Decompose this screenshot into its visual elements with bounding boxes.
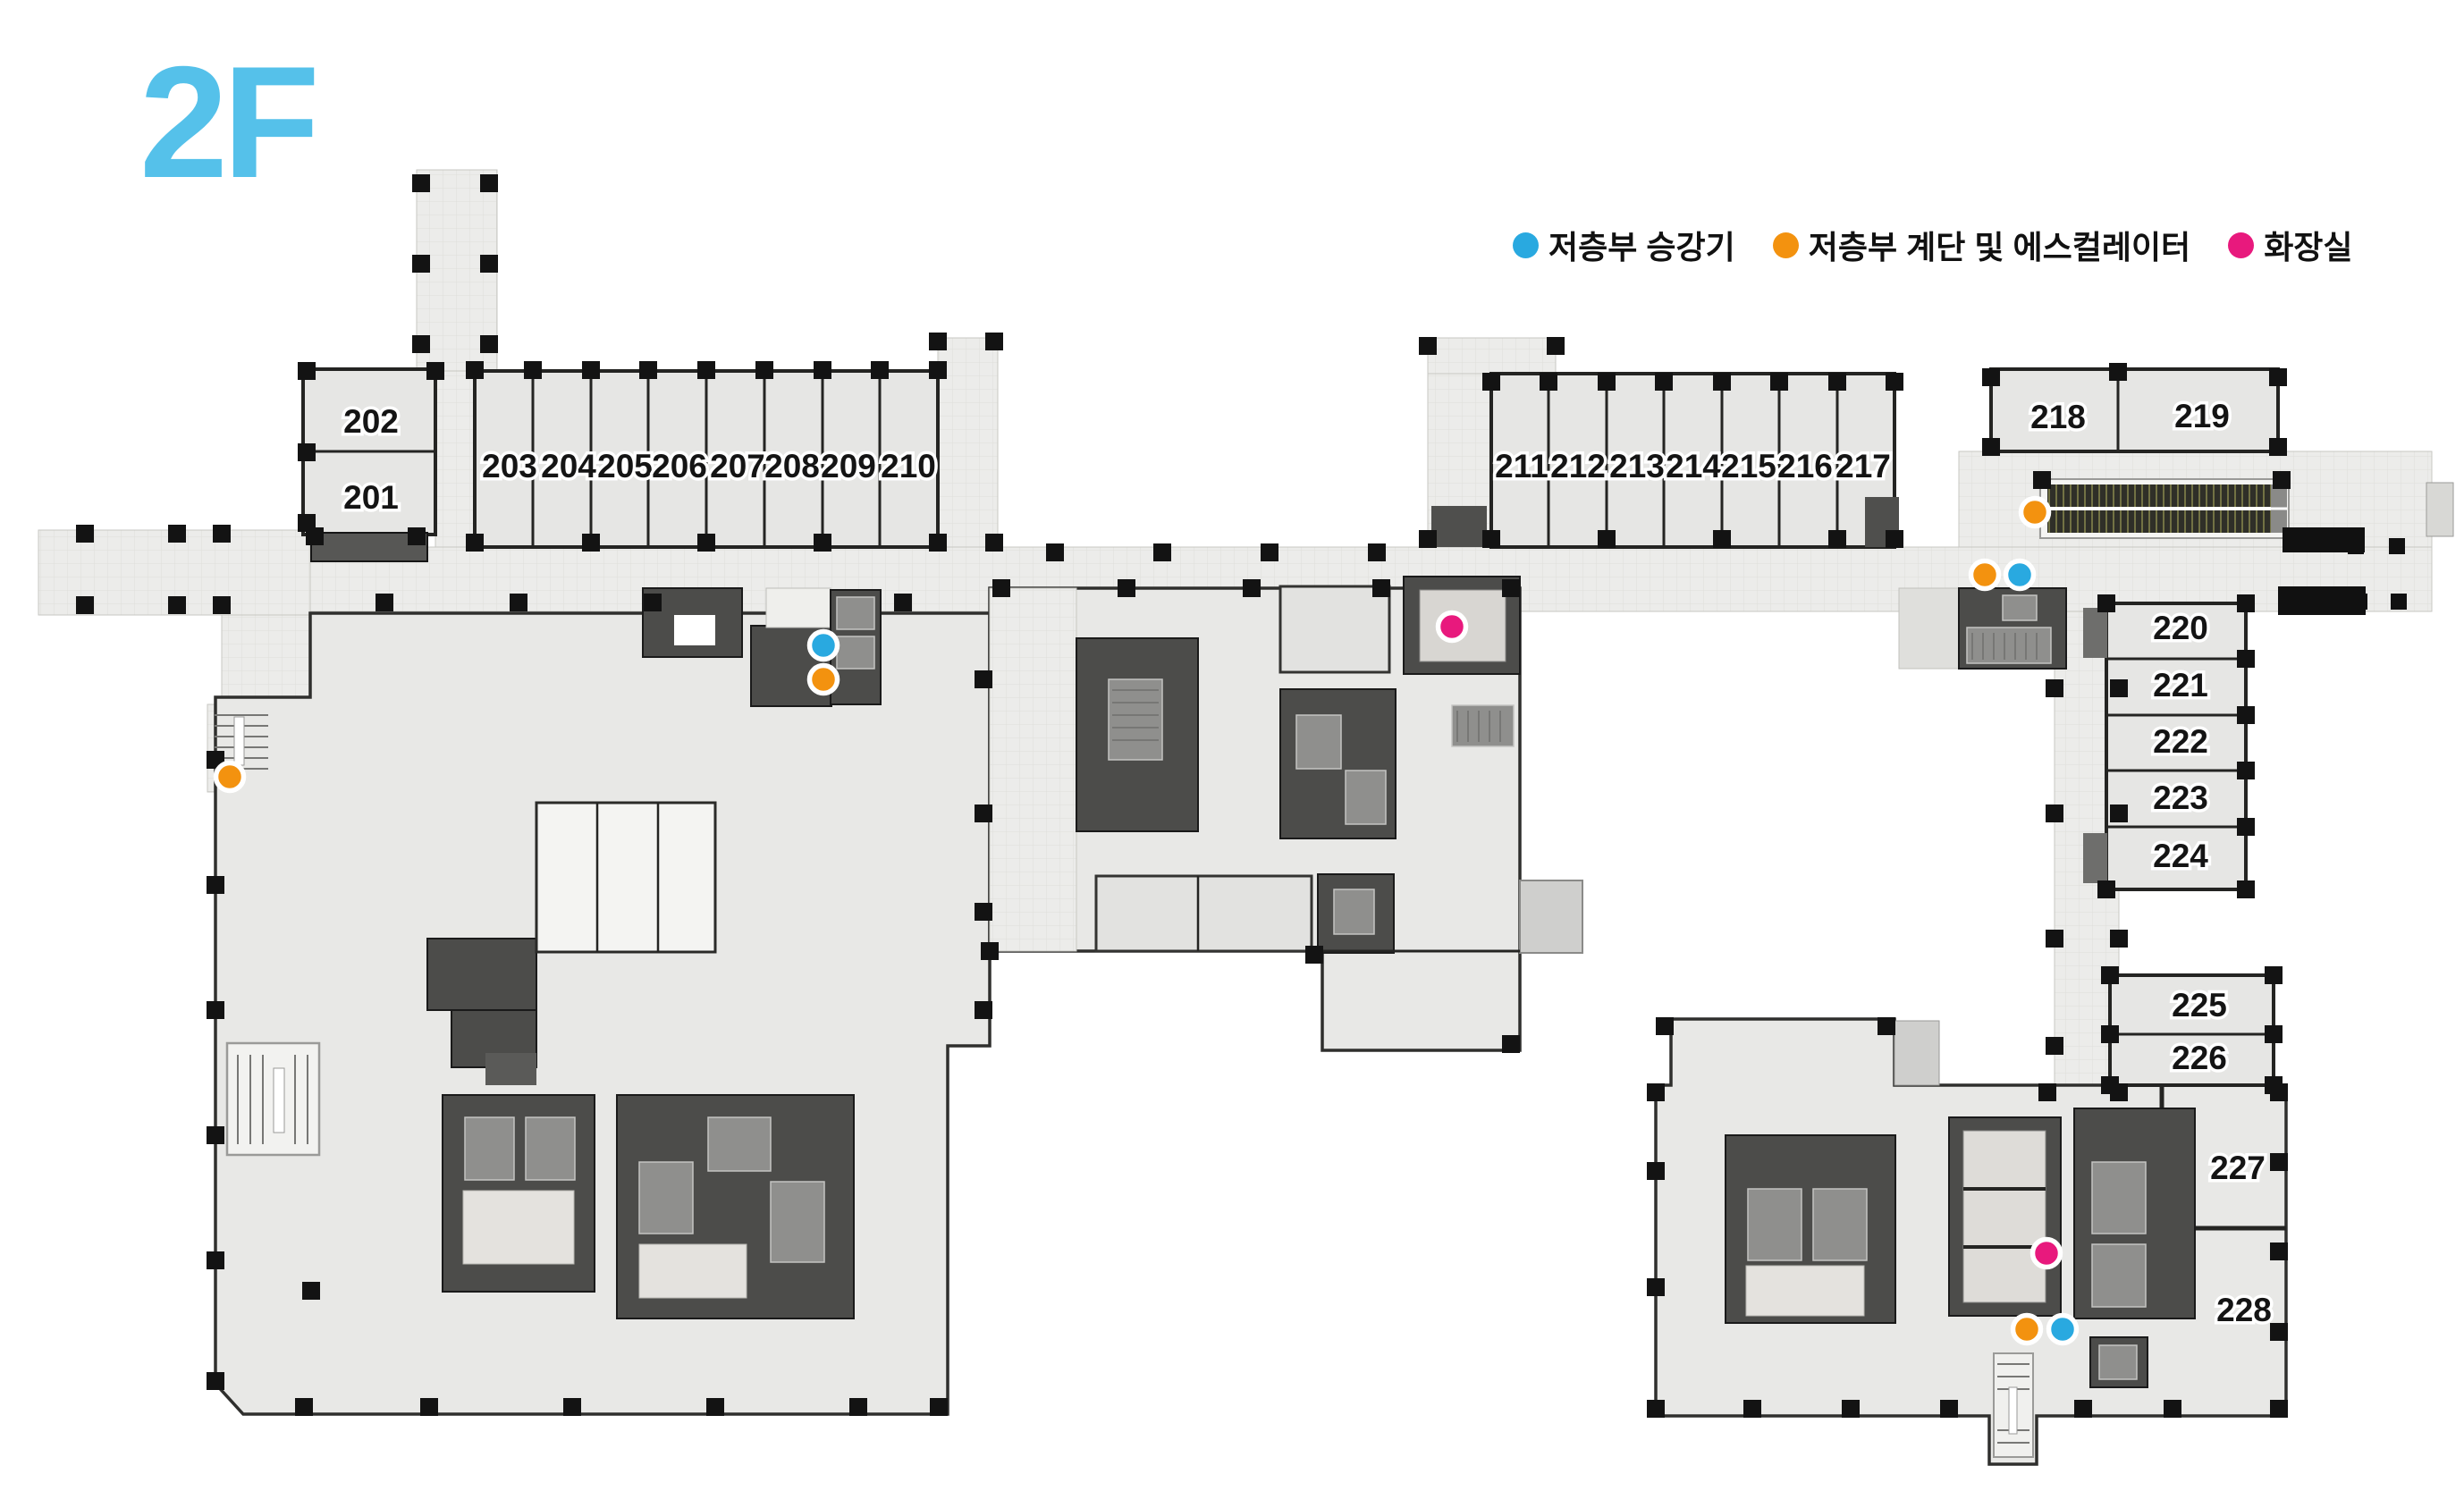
- rooms-left-top: [536, 803, 715, 952]
- room-label-208: 208: [764, 448, 820, 484]
- column: [207, 1126, 224, 1144]
- room-label-201: 201: [343, 479, 399, 516]
- column: [1878, 1017, 1895, 1035]
- column: [975, 903, 992, 921]
- room-label-207: 207: [710, 448, 765, 484]
- column: [207, 1251, 224, 1269]
- column: [1547, 337, 1565, 355]
- column: [1261, 543, 1278, 561]
- room-label-227: 227: [2210, 1150, 2266, 1186]
- column: [706, 1398, 724, 1416]
- column: [1372, 579, 1390, 597]
- column: [1828, 530, 1846, 548]
- floor-title: 2F: [139, 43, 315, 202]
- column: [168, 525, 186, 543]
- room-label-214: 214: [1666, 448, 1721, 484]
- column: [814, 534, 831, 552]
- column: [1368, 543, 1386, 561]
- room-label-206: 206: [652, 448, 707, 484]
- building-center-balcony: [1520, 880, 1582, 953]
- column: [985, 333, 1003, 350]
- column: [2237, 594, 2255, 612]
- column: [2273, 471, 2291, 489]
- floorplan-page: 2012022032042052062072082092102112122132…: [0, 0, 2464, 1491]
- corridor-tab-211: [1428, 338, 1556, 374]
- column: [466, 534, 484, 552]
- column: [2265, 1025, 2283, 1043]
- column: [929, 361, 947, 379]
- elevator-dot-icon: [1513, 232, 1539, 258]
- corridor-right-of-210: [938, 338, 998, 547]
- room-label-216: 216: [1777, 448, 1833, 484]
- column: [2101, 966, 2119, 984]
- column: [408, 527, 426, 545]
- room-label-212: 212: [1550, 448, 1606, 484]
- column: [639, 361, 657, 379]
- elevator-car-2: [837, 636, 874, 669]
- marker-restroom: [2033, 1240, 2061, 1268]
- corridor-gap-202-203: [435, 371, 475, 547]
- column: [563, 1398, 581, 1416]
- room-label-213: 213: [1609, 448, 1665, 484]
- column: [644, 594, 662, 611]
- column: [814, 361, 831, 379]
- column: [306, 527, 324, 545]
- column: [981, 942, 999, 960]
- column: [2270, 1242, 2288, 1260]
- column: [1243, 579, 1261, 597]
- column: [1655, 373, 1673, 391]
- center-rooms-top: [1280, 586, 1389, 672]
- column: [1482, 530, 1500, 548]
- center-rooms-bottom: [1096, 876, 1312, 951]
- column: [1647, 1162, 1665, 1180]
- atrium-stair-rail: [274, 1068, 284, 1133]
- column: [1540, 373, 1557, 391]
- lower-lobe-balcony: [1894, 1021, 1939, 1085]
- core-left-lobby: [766, 588, 831, 628]
- corridor-left-junction: [222, 615, 310, 704]
- column: [420, 1398, 438, 1416]
- column: [2074, 1400, 2092, 1418]
- room-label-204: 204: [541, 448, 596, 484]
- column: [1502, 579, 1520, 597]
- column: [213, 596, 231, 614]
- room-label-224: 224: [2153, 838, 2208, 874]
- column: [2270, 1400, 2288, 1418]
- column: [2110, 930, 2128, 948]
- lr-restroom-inner: [1963, 1131, 2046, 1302]
- marker-stairs-escalator: [216, 763, 244, 791]
- column: [1656, 1017, 1674, 1035]
- column: [2110, 679, 2128, 697]
- column: [1982, 438, 2000, 456]
- room-label-215: 215: [1721, 448, 1776, 484]
- column: [2237, 818, 2255, 836]
- column: [1842, 1400, 1860, 1418]
- legend-label: 저층부 계단 및 에스컬레이터: [1809, 222, 2190, 268]
- column: [1118, 579, 1135, 597]
- restroom-dot-icon: [2228, 232, 2254, 258]
- marker-elevator: [2006, 561, 2034, 589]
- column: [480, 174, 498, 192]
- column: [582, 361, 600, 379]
- column: [1713, 373, 1731, 391]
- column: [1940, 1400, 1958, 1418]
- column: [2046, 804, 2063, 822]
- room-label-218: 218: [2030, 399, 2086, 435]
- stub-left-of-211: [1431, 506, 1487, 547]
- column: [2097, 594, 2115, 612]
- room-label-223: 223: [2153, 779, 2208, 816]
- column: [582, 534, 600, 552]
- column: [2269, 368, 2287, 386]
- legend-item-elevator: 저층부 승강기: [1513, 222, 1735, 268]
- marker-stairs-escalator: [810, 666, 838, 694]
- column: [1046, 543, 1064, 561]
- column: [2269, 438, 2287, 456]
- column: [2046, 930, 2063, 948]
- column: [480, 255, 498, 273]
- column: [2101, 1025, 2119, 1043]
- room-label-202: 202: [343, 403, 399, 440]
- room-label-205: 205: [597, 448, 653, 484]
- column: [755, 361, 773, 379]
- column: [510, 594, 527, 611]
- column: [2164, 1400, 2181, 1418]
- column: [298, 443, 316, 461]
- column: [1419, 530, 1437, 548]
- column: [1305, 946, 1323, 964]
- column: [849, 1398, 867, 1416]
- escalator-band-up: [2047, 484, 2271, 507]
- column: [426, 362, 444, 380]
- building-left: [215, 613, 990, 1414]
- lr-stair: [1994, 1353, 2033, 1457]
- column: [2237, 762, 2255, 779]
- column: [2265, 966, 2283, 984]
- column: [1502, 1035, 1520, 1053]
- marker-elevator: [810, 632, 838, 660]
- core-left-void: [674, 615, 715, 645]
- column: [1647, 1400, 1665, 1418]
- column: [975, 804, 992, 822]
- column: [412, 174, 430, 192]
- elevator-car-1: [837, 597, 874, 629]
- room-label-221: 221: [2153, 667, 2208, 703]
- column: [985, 534, 1003, 552]
- column: [894, 594, 912, 611]
- court-near-core: [1899, 588, 1960, 669]
- legend: 저층부 승강기 저층부 계단 및 에스컬레이터 화장실: [1513, 222, 2353, 268]
- column: [412, 335, 430, 353]
- column: [1886, 373, 1903, 391]
- bath-block-3: [485, 1053, 536, 1085]
- column: [930, 1398, 948, 1416]
- escalator: [2040, 479, 2289, 538]
- column: [298, 362, 316, 380]
- room-label-217: 217: [1835, 448, 1891, 484]
- column: [2237, 706, 2255, 724]
- column: [992, 579, 1010, 597]
- column: [376, 594, 393, 611]
- marker-restroom: [1439, 613, 1466, 641]
- tab-left-220: [2083, 608, 2107, 658]
- column: [871, 361, 889, 379]
- marker-stairs-escalator: [2021, 499, 2049, 526]
- column: [1770, 373, 1788, 391]
- column: [2110, 1083, 2128, 1101]
- room-label-211: 211: [1495, 448, 1548, 484]
- column: [76, 596, 94, 614]
- room-label-228: 228: [2216, 1292, 2272, 1328]
- marker-stairs-escalator: [1971, 561, 1999, 589]
- column: [975, 670, 992, 688]
- column: [168, 596, 186, 614]
- room-label-203: 203: [482, 448, 537, 484]
- legend-item-stairs-escalator: 저층부 계단 및 에스컬레이터: [1773, 222, 2190, 268]
- stairs-escalator-dot-icon: [1773, 232, 1799, 258]
- room-label-222: 222: [2153, 723, 2208, 760]
- column: [697, 534, 715, 552]
- legend-item-restroom: 화장실: [2228, 222, 2352, 268]
- column: [2109, 363, 2127, 381]
- column: [929, 333, 947, 350]
- center-stair: [1452, 705, 1514, 746]
- column: [2046, 1037, 2063, 1055]
- column: [480, 335, 498, 353]
- column: [207, 1001, 224, 1019]
- column: [697, 361, 715, 379]
- column: [2033, 471, 2051, 489]
- column: [412, 255, 430, 273]
- column: [2237, 650, 2255, 668]
- column: [524, 361, 542, 379]
- column: [1886, 530, 1903, 548]
- column: [207, 1372, 224, 1390]
- column: [2110, 804, 2128, 822]
- legend-label: 화장실: [2264, 222, 2352, 268]
- column: [2046, 679, 2063, 697]
- room-label-225: 225: [2172, 987, 2227, 1023]
- column: [1419, 337, 1437, 355]
- room-label-210: 210: [881, 448, 936, 484]
- column: [2038, 1083, 2056, 1101]
- marker-stairs-escalator: [2013, 1316, 2041, 1344]
- column: [466, 361, 484, 379]
- column: [76, 525, 94, 543]
- column: [2270, 1323, 2288, 1341]
- column: [1743, 1400, 1761, 1418]
- room-label-219: 219: [2174, 398, 2230, 434]
- column: [1153, 543, 1171, 561]
- bath-block-1: [427, 939, 536, 1010]
- column: [929, 534, 947, 552]
- legend-label: 저층부 승강기: [1548, 222, 1735, 268]
- column: [975, 1001, 992, 1019]
- column: [1828, 373, 1846, 391]
- center-open-hall: [990, 588, 1076, 951]
- column: [1482, 373, 1500, 391]
- column: [213, 525, 231, 543]
- column: [1647, 1278, 1665, 1296]
- column: [295, 1398, 313, 1416]
- column: [1598, 373, 1616, 391]
- marker-elevator: [2049, 1316, 2077, 1344]
- column: [207, 876, 224, 894]
- column: [1598, 530, 1616, 548]
- column: [302, 1282, 320, 1300]
- room-label-226: 226: [2172, 1040, 2227, 1076]
- column: [1713, 530, 1731, 548]
- tab-left-224: [2083, 833, 2107, 883]
- column: [1647, 1083, 1665, 1101]
- escalator-band-down: [2047, 510, 2271, 533]
- column: [2237, 880, 2255, 898]
- room-label-220: 220: [2153, 610, 2208, 646]
- room-label-209: 209: [821, 448, 876, 484]
- column: [2097, 880, 2115, 898]
- column: [1982, 368, 2000, 386]
- column: [2270, 1153, 2288, 1171]
- column: [2270, 1083, 2288, 1101]
